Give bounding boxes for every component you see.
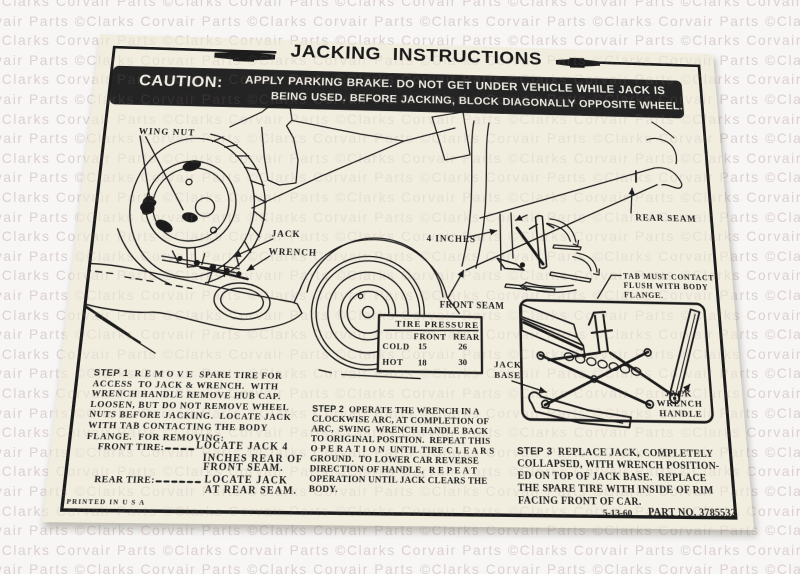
svg-text:4 INCHES: 4 INCHES: [427, 234, 476, 245]
svg-text:26: 26: [458, 341, 467, 351]
svg-text:30: 30: [458, 357, 467, 367]
svg-text:BASE: BASE: [494, 370, 521, 381]
svg-text:JACK: JACK: [494, 359, 522, 370]
svg-text:FLANGE.: FLANGE.: [624, 290, 664, 301]
svg-text:HOT: HOT: [382, 357, 403, 368]
svg-text:FRONT SEAM: FRONT SEAM: [440, 300, 505, 311]
svg-text:REAR SEAM: REAR SEAM: [635, 213, 697, 224]
svg-text:HANDLE: HANDLE: [659, 408, 703, 419]
svg-text:18: 18: [418, 357, 427, 367]
svg-text:15: 15: [418, 341, 427, 351]
svg-text:WING NUT: WING NUT: [138, 127, 195, 138]
svg-text:TIRE PRESSURE: TIRE PRESSURE: [395, 319, 479, 331]
svg-text:WRENCH: WRENCH: [268, 247, 317, 258]
svg-text:JACK: JACK: [271, 229, 300, 239]
svg-text:COLD: COLD: [382, 341, 409, 352]
